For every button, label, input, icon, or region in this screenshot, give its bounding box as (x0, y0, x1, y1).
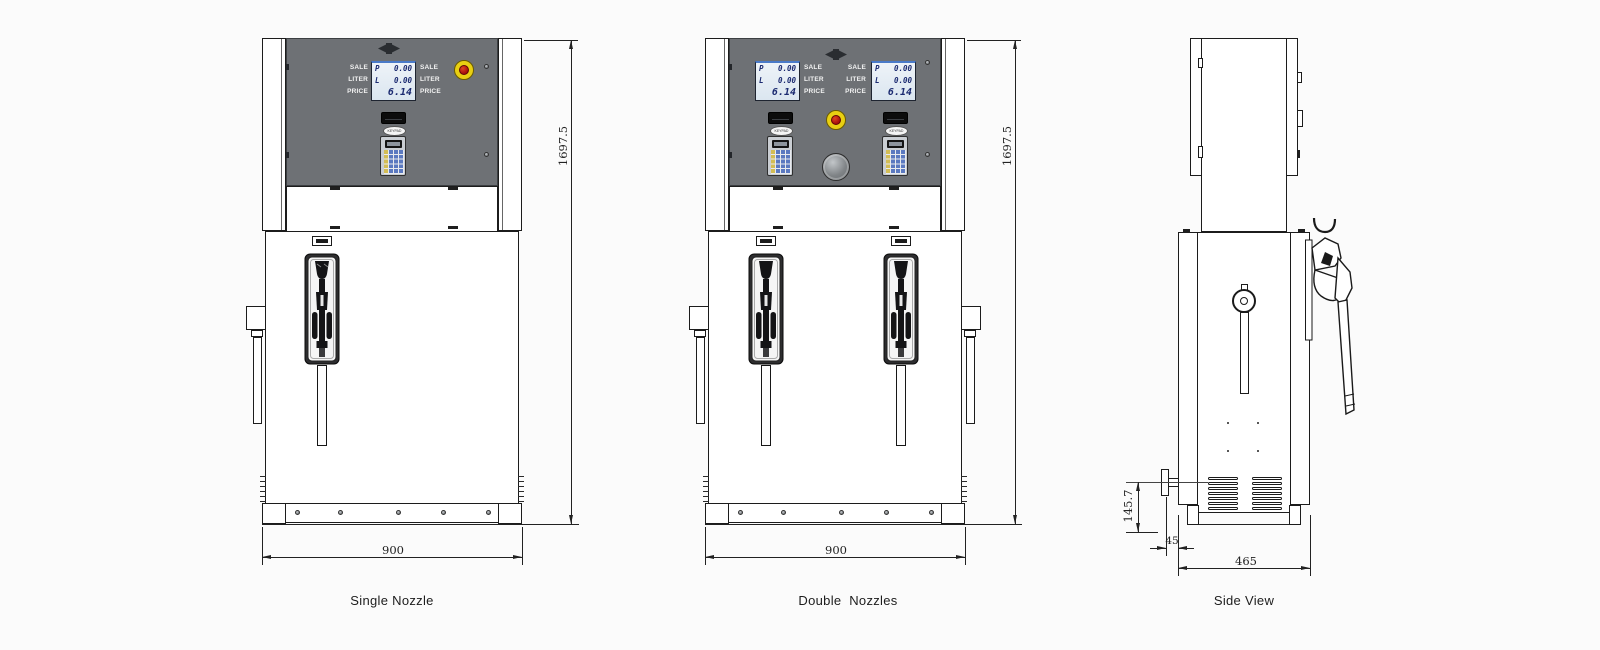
side-nozzle-and-hose (1305, 214, 1361, 424)
technical-drawing-canvas: P0.00 L0.00 6.14 SALELITERPRICE SALELITE… (0, 0, 1600, 650)
arrow-icon (1178, 566, 1187, 570)
top-tick (1183, 229, 1190, 233)
head-column (1201, 38, 1287, 232)
side-protrusion (1297, 110, 1303, 127)
side-mark (1297, 150, 1300, 158)
base-bottom-line (1199, 524, 1289, 525)
vent-louver (1208, 477, 1238, 480)
arrow-icon (1301, 566, 1310, 570)
vent-louver (1208, 497, 1238, 500)
vent-louver (1252, 477, 1282, 480)
inlet-height-dimension-text: 145.7 (1121, 490, 1135, 523)
top-tick (1298, 229, 1305, 233)
view-side: 145.7 45 465 Side View (0, 0, 1600, 650)
reference-line (1126, 532, 1158, 533)
cabinet-cap-left (1178, 232, 1198, 505)
arrow-icon (1136, 482, 1140, 491)
caption-side-view: Side View (1214, 593, 1274, 608)
vent-louver (1208, 487, 1238, 490)
panel-dot (1227, 422, 1229, 424)
foot (1289, 505, 1301, 525)
vent-louver (1252, 507, 1282, 510)
extension-line (1310, 515, 1311, 576)
side-protrusion (1297, 72, 1302, 83)
arrow-icon (1136, 523, 1140, 532)
vent-louver (1208, 507, 1238, 510)
depth-dimension-line (1178, 568, 1310, 569)
vent-louver (1252, 487, 1282, 490)
cap-notch (1198, 146, 1203, 158)
inlet-offset-dimension-text: 45 (1165, 535, 1178, 547)
vent-louver (1252, 492, 1282, 495)
internal-valve (1232, 289, 1256, 313)
internal-pipe (1240, 312, 1249, 394)
panel-dot (1227, 450, 1229, 452)
arrow-icon (1178, 546, 1187, 550)
vent-louver (1208, 502, 1238, 505)
panel-dot (1257, 422, 1259, 424)
foot (1187, 505, 1199, 525)
extension-line (1166, 497, 1167, 556)
vent-louver (1252, 502, 1282, 505)
vent-louver (1208, 492, 1238, 495)
vent-louver (1208, 482, 1238, 485)
cap-notch (1198, 58, 1203, 68)
panel-dot (1257, 450, 1259, 452)
vent-louver (1252, 497, 1282, 500)
depth-dimension-text: 465 (1235, 554, 1257, 568)
vent-louver (1252, 482, 1282, 485)
